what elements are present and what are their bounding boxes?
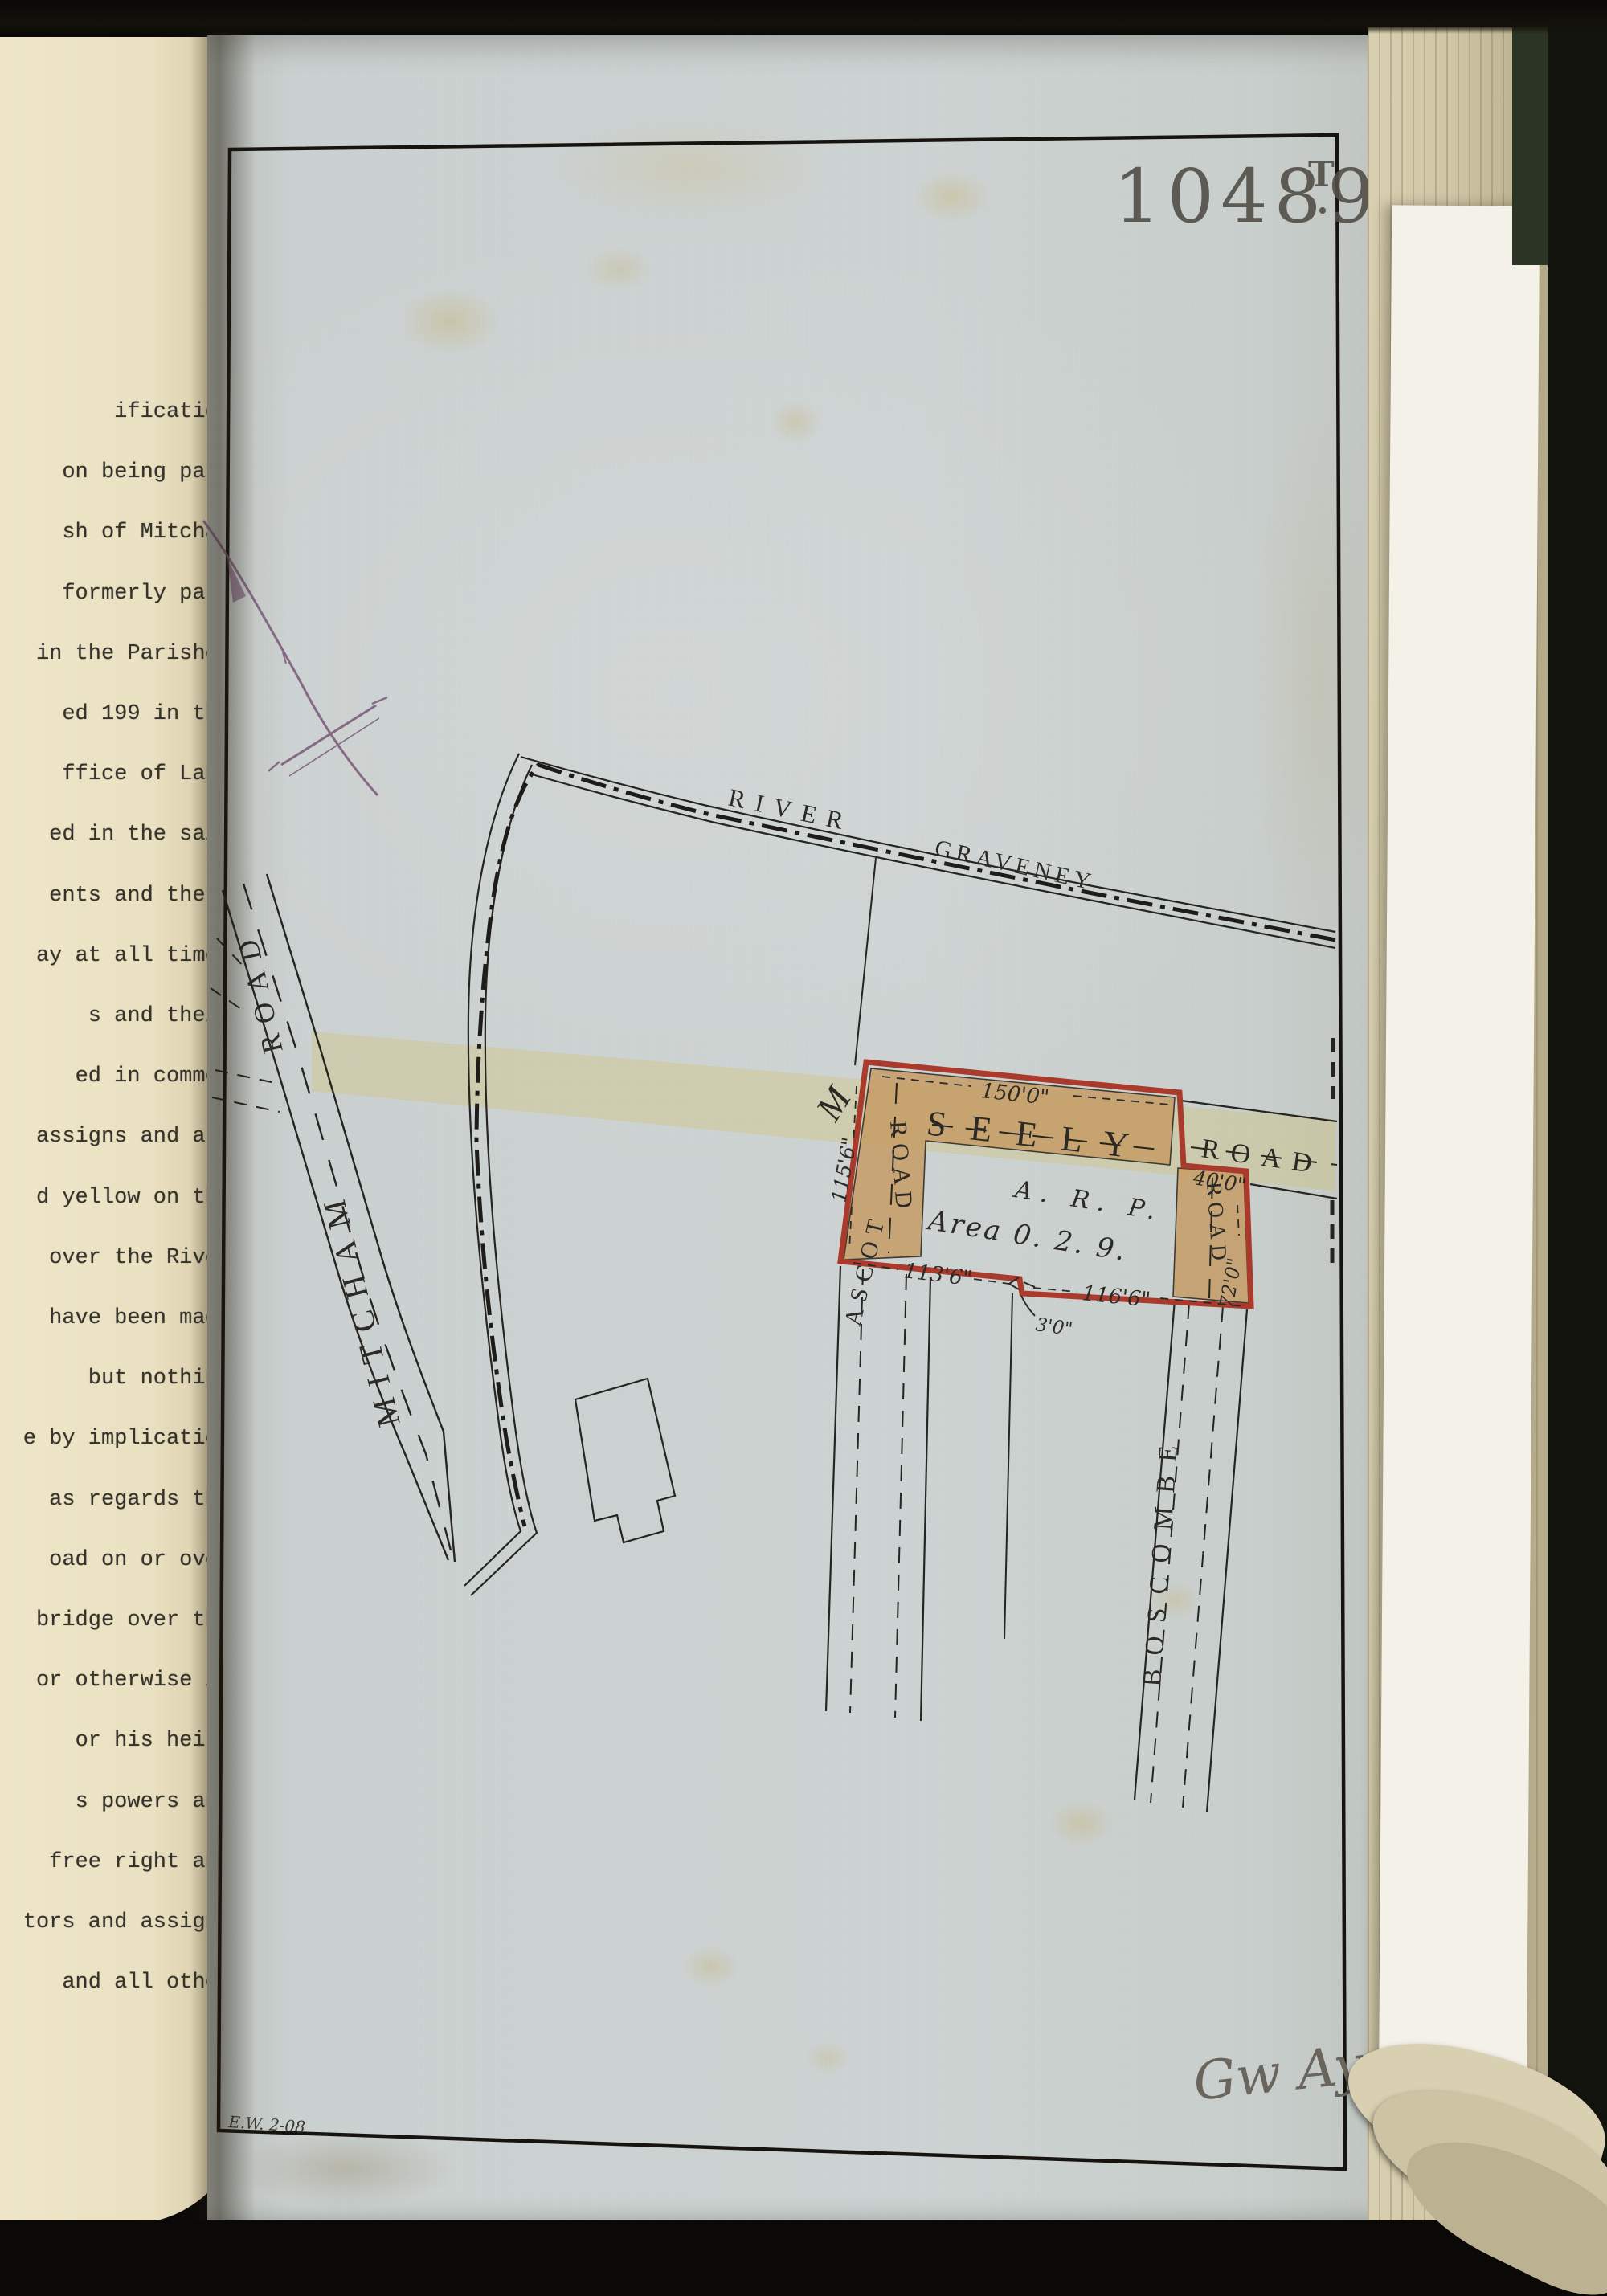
dim-step: 3'0" (1034, 1314, 1073, 1340)
boscombe-label: BOSCOMBE (1138, 1431, 1184, 1687)
dim-bottom-right: 116'6" (1081, 1281, 1151, 1313)
owner-signature: Gw Ay (1191, 2033, 1368, 2113)
scanned-deed-page: ificationon being partsh of Mitchamforme… (0, 0, 1607, 2296)
sheet-number-stamp: 10489 T (1114, 153, 1381, 239)
loose-white-sheet (1379, 205, 1540, 2105)
area-header: A. R. P. (1011, 1175, 1165, 1227)
dim-bottom-left: 113'6" (902, 1259, 973, 1291)
graveney-label: GRAVENEY (932, 835, 1098, 896)
sheet-number: 10489 (1114, 153, 1381, 239)
sheet-number-suffix: T (1308, 154, 1335, 195)
mitcham-label: MITCHAM (313, 1184, 407, 1431)
river-upper-bank (521, 757, 1335, 932)
winding-lane (464, 754, 537, 1595)
bottom-dark-edge (0, 2220, 1607, 2296)
building-outline (575, 1379, 675, 1542)
parcel-boundary-line (855, 858, 876, 1065)
river-graveney (521, 757, 1335, 948)
right-dark-edge (1548, 0, 1607, 2296)
gutter-shadow (190, 32, 256, 2233)
ascot-road-south (826, 1266, 930, 1721)
mid-boundary-south (1004, 1293, 1012, 1639)
top-dark-edge (0, 0, 1607, 34)
